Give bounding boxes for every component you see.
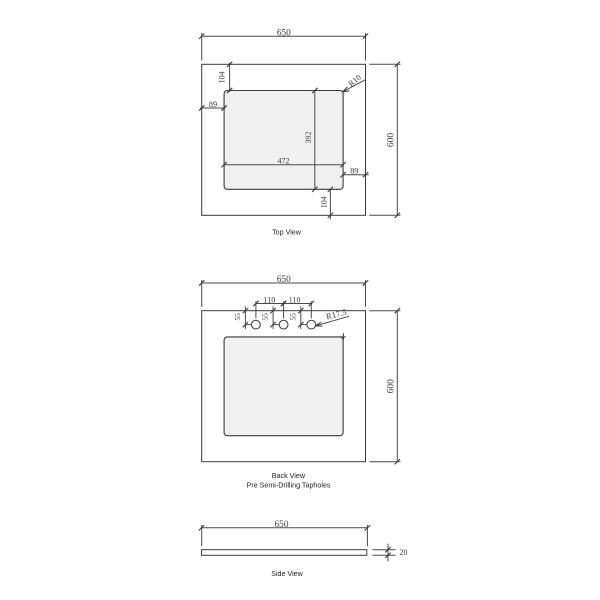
svg-text:650: 650 [277, 275, 291, 285]
svg-text:600: 600 [387, 379, 397, 394]
svg-text:104: 104 [218, 71, 227, 83]
svg-text:Top View: Top View [272, 229, 302, 237]
svg-text:600: 600 [387, 133, 397, 148]
svg-text:55: 55 [261, 313, 270, 321]
svg-text:472: 472 [278, 156, 290, 165]
svg-text:89: 89 [209, 100, 217, 109]
svg-text:Back View: Back View [272, 472, 306, 480]
svg-text:650: 650 [277, 28, 291, 38]
svg-text:392: 392 [304, 132, 313, 144]
svg-text:20: 20 [400, 548, 408, 557]
svg-text:55: 55 [233, 313, 242, 321]
svg-text:110: 110 [264, 296, 276, 305]
svg-text:55: 55 [288, 313, 297, 321]
svg-text:Pre Semi-Drilling Tapholes: Pre Semi-Drilling Tapholes [246, 481, 330, 489]
svg-text:110: 110 [289, 296, 301, 305]
svg-text:650: 650 [275, 520, 289, 530]
svg-text:Side View: Side View [271, 570, 303, 578]
svg-text:104: 104 [319, 196, 328, 208]
svg-text:89: 89 [350, 166, 358, 175]
